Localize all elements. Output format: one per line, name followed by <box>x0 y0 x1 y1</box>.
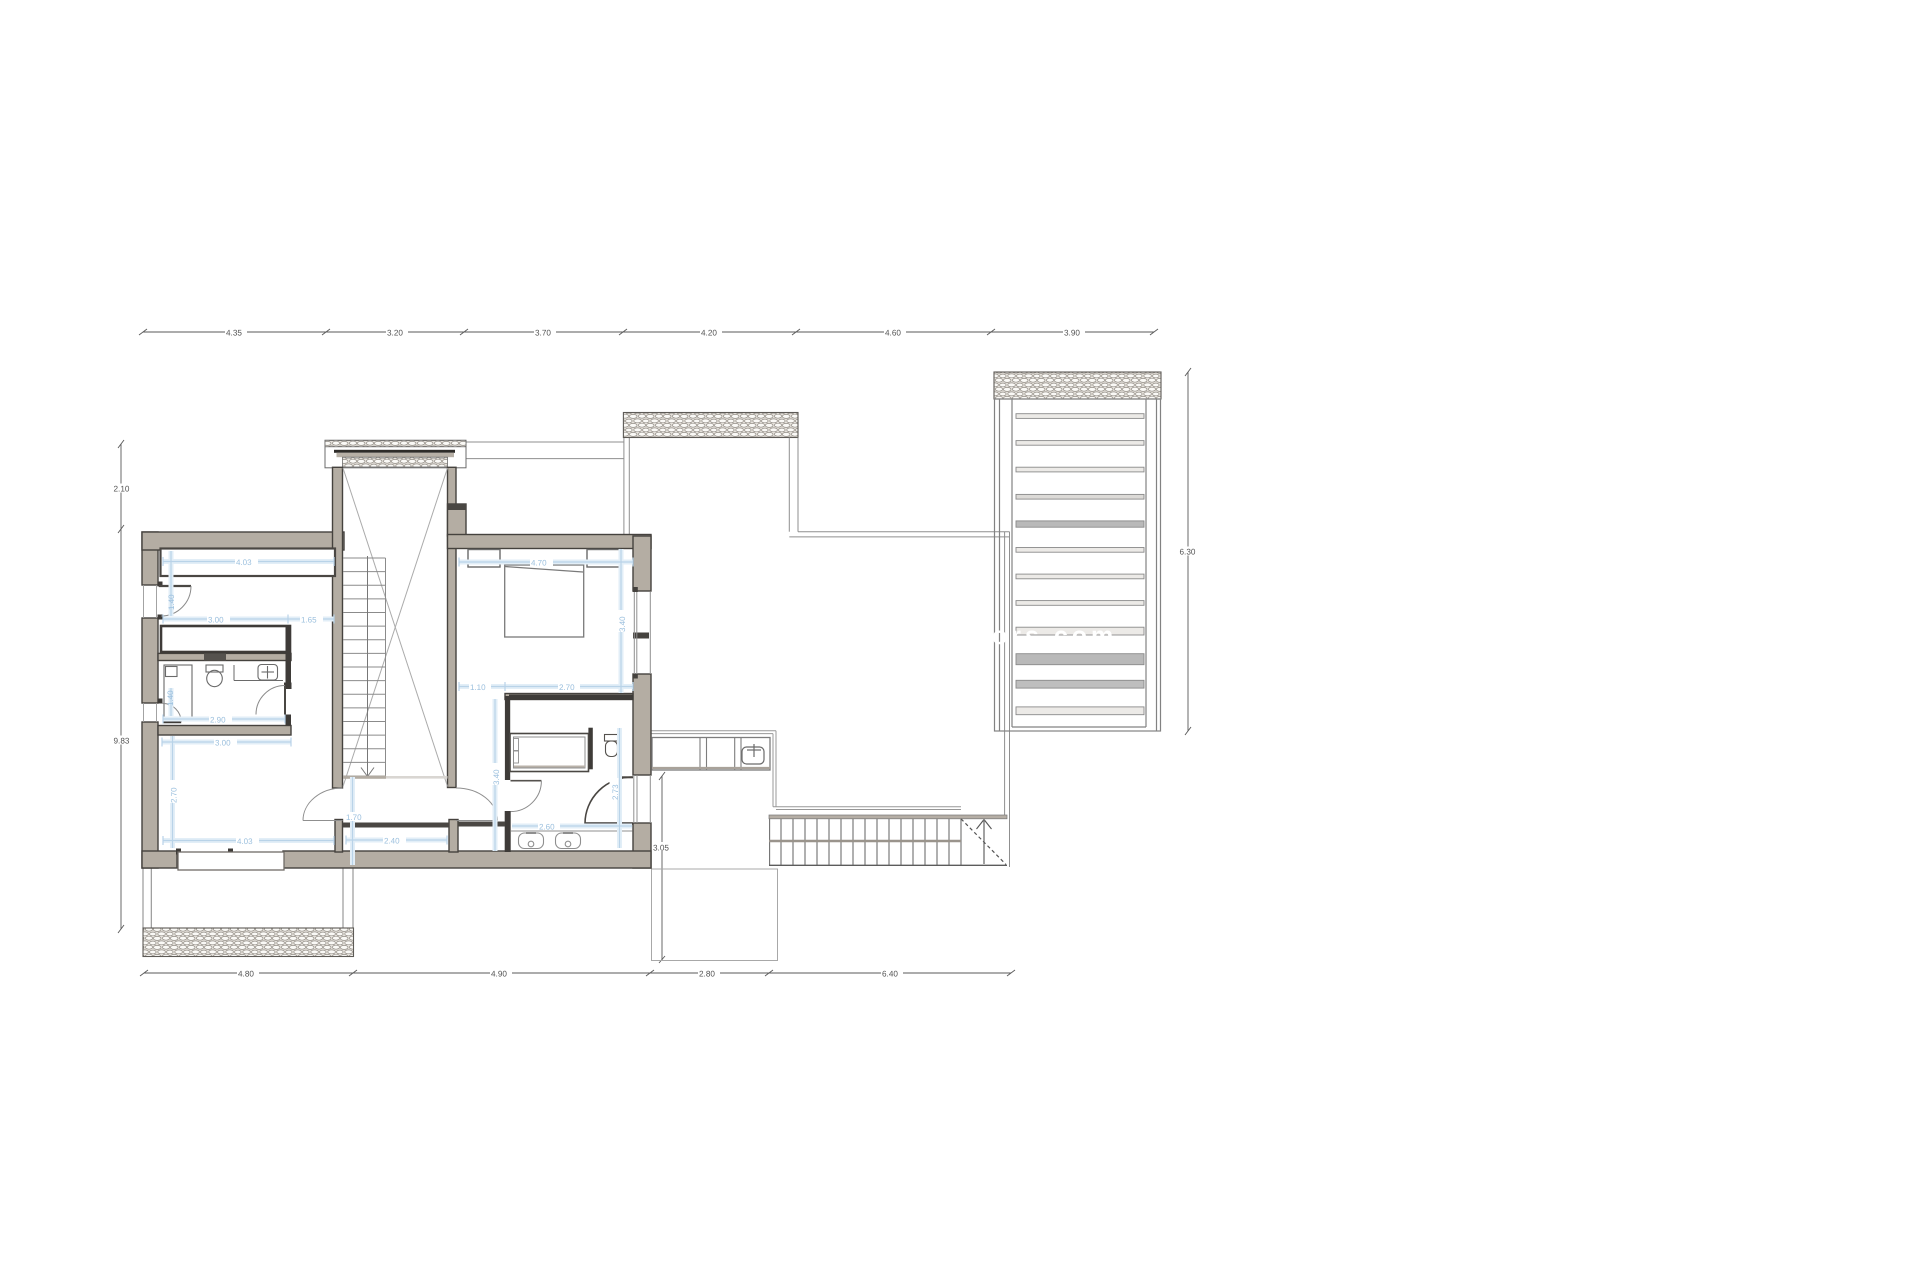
svg-text:3.00: 3.00 <box>208 616 224 625</box>
svg-text:3.00: 3.00 <box>215 739 231 748</box>
svg-text:2.90: 2.90 <box>210 716 226 725</box>
svg-text:3.05: 3.05 <box>653 844 669 853</box>
svg-text:ors com: ors com <box>992 622 1117 650</box>
svg-text:1.70: 1.70 <box>346 813 362 822</box>
svg-text:3.20: 3.20 <box>387 329 403 338</box>
svg-text:2.73: 2.73 <box>611 784 620 800</box>
svg-text:2.70: 2.70 <box>170 787 179 803</box>
svg-text:2.40: 2.40 <box>384 837 400 846</box>
svg-text:1.65: 1.65 <box>301 616 317 625</box>
svg-text:3.90: 3.90 <box>1064 329 1080 338</box>
svg-text:9.83: 9.83 <box>114 737 130 746</box>
svg-text:4.03: 4.03 <box>237 837 253 846</box>
svg-text:2.10: 2.10 <box>114 485 130 494</box>
svg-text:2.80: 2.80 <box>699 970 715 979</box>
svg-text:4.80: 4.80 <box>238 970 254 979</box>
svg-text:3.40: 3.40 <box>492 769 501 785</box>
svg-text:6.30: 6.30 <box>1180 548 1196 557</box>
svg-text:4.20: 4.20 <box>701 329 717 338</box>
svg-text:1.40: 1.40 <box>166 690 175 706</box>
svg-text:2.70: 2.70 <box>559 683 575 692</box>
svg-text:4.03: 4.03 <box>236 558 252 567</box>
svg-text:4.35: 4.35 <box>226 329 242 338</box>
svg-text:3.70: 3.70 <box>535 329 551 338</box>
svg-text:4.70: 4.70 <box>531 559 547 568</box>
svg-text:4.60: 4.60 <box>885 329 901 338</box>
svg-text:1.10: 1.10 <box>470 683 486 692</box>
svg-text:2.60: 2.60 <box>539 823 555 832</box>
svg-text:1.40: 1.40 <box>167 594 176 610</box>
svg-text:3.40: 3.40 <box>618 616 627 632</box>
svg-text:6.40: 6.40 <box>882 970 898 979</box>
svg-text:4.90: 4.90 <box>491 970 507 979</box>
